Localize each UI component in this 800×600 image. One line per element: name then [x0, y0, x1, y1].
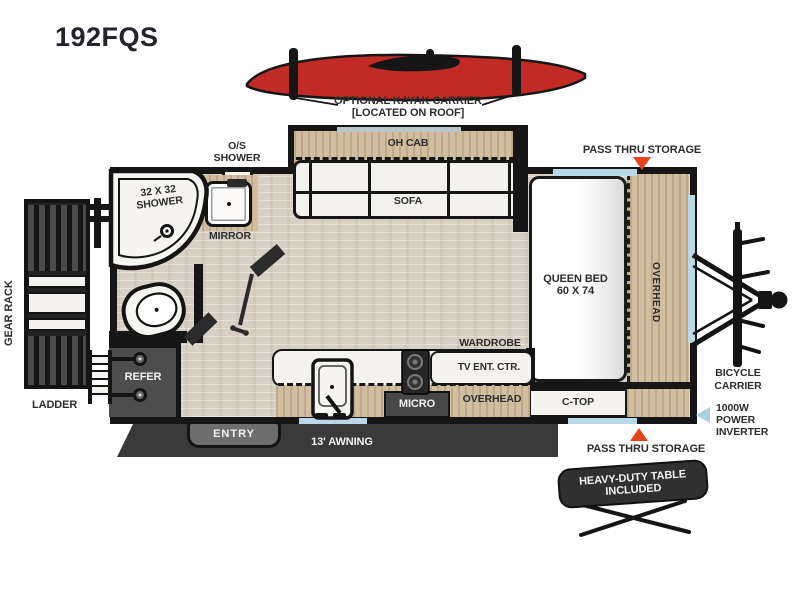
- kayak-strap: [512, 45, 521, 96]
- tv-ent-label: TV ENT. CTR.: [444, 362, 534, 373]
- kitchen-overhead-label: OVERHEAD: [450, 394, 534, 406]
- illustration-layer: [0, 0, 800, 600]
- inverter-label-line2: POWER: [716, 415, 755, 427]
- kayak-note-line1: OPTIONAL KAYAK CARRIER: [318, 95, 498, 107]
- inverter-arrow-icon: [696, 407, 710, 423]
- awning-label: 13' AWNING: [290, 436, 394, 448]
- queen-bed-label-line2: 60 X 74: [523, 285, 628, 297]
- sofa-label: SOFA: [366, 196, 450, 208]
- bicycle-carrier-label-line2: CARRIER: [699, 381, 777, 393]
- os-shower-label-line1: O/S: [207, 141, 267, 153]
- pass-thru-bottom-arrow-icon: [630, 428, 648, 441]
- bedroom-overhead-label: OVERHEAD: [650, 262, 661, 346]
- floorplan-canvas: 192FQS C-TOP MICRO ENTRY: [0, 0, 800, 600]
- hitch-ball: [771, 292, 788, 309]
- bicycle-carrier-label-line1: BICYCLE: [699, 368, 777, 380]
- gear-rack-label: GEAR RACK: [3, 242, 15, 346]
- kitchen-sink: [313, 360, 352, 419]
- stove: [402, 350, 429, 394]
- pass-thru-top-label: PASS THRU STORAGE: [563, 144, 721, 156]
- inverter-label-line3: INVERTER: [716, 427, 768, 439]
- kayak-strap: [289, 48, 298, 100]
- ladder-label: LADDER: [32, 399, 77, 411]
- mirror-label: MIRROR: [203, 231, 257, 243]
- toilet: [119, 279, 189, 342]
- entry-door: [188, 317, 213, 341]
- table-badge-line2: INCLUDED: [605, 482, 662, 498]
- wardrobe-label: WARDROBE: [448, 338, 532, 350]
- kayak-note-line2: [LOCATED ON ROOF]: [318, 107, 498, 119]
- os-shower-label-line2: SHOWER: [207, 153, 267, 165]
- queen-bed-label-line1: QUEEN BED: [523, 273, 628, 285]
- kayak-handle: [426, 49, 434, 57]
- pass-thru-top-arrow-icon: [633, 157, 651, 170]
- refer-label: REFER: [114, 371, 172, 383]
- inverter-label-line1: 1000W: [716, 403, 749, 415]
- bathroom-door: [230, 249, 281, 336]
- oh-cab-label: OH CAB: [366, 138, 450, 150]
- pass-thru-bottom-label: PASS THRU STORAGE: [567, 443, 725, 455]
